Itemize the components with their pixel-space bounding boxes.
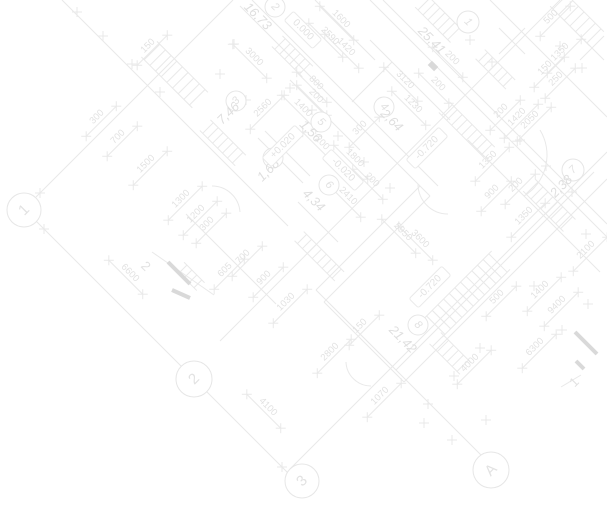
- stair-step: [437, 340, 448, 351]
- room-area-label: 25,41: [414, 22, 448, 56]
- stair-step: [452, 115, 463, 126]
- stair-stringer: [476, 59, 506, 89]
- stair-step: [461, 124, 472, 135]
- window-symbols: [428, 61, 439, 72]
- section-number-label: 1: [566, 374, 582, 390]
- section-number-label: 2: [138, 258, 154, 274]
- plan-line: [324, 196, 430, 302]
- stair-step: [536, 192, 548, 204]
- stair-step: [498, 72, 507, 81]
- section-thick-mark: [576, 361, 584, 369]
- plan-line: [324, 302, 404, 382]
- stair-step: [471, 134, 482, 145]
- stair-stringer: [210, 120, 245, 155]
- stair-step: [307, 244, 316, 253]
- stair-step: [442, 345, 453, 356]
- stair-stringer: [430, 344, 460, 374]
- stair-step: [466, 276, 484, 294]
- stair-step: [438, 305, 456, 323]
- dimension-label: 200: [443, 49, 462, 68]
- stair-stringer: [304, 232, 344, 272]
- stair-step: [438, 18, 450, 30]
- door-swing-arc: [212, 186, 240, 212]
- dimension-label: 200: [429, 75, 448, 94]
- plan-line: [370, 0, 607, 237]
- stair-step: [478, 52, 487, 61]
- blueprint-page: 123A213457678150300700150013001200300025…: [0, 0, 607, 506]
- dimension-label: 700: [109, 128, 128, 147]
- stair-step: [576, 18, 590, 32]
- stair-step: [472, 271, 490, 289]
- stair-step: [232, 152, 243, 163]
- door-swing-arc: [524, 130, 547, 196]
- stair-step: [322, 259, 331, 268]
- stair-step: [476, 139, 487, 150]
- section-thick-mark: [575, 332, 597, 354]
- stair-step: [526, 182, 538, 194]
- stair-stringer: [141, 57, 192, 108]
- stair-step: [427, 316, 445, 334]
- stair-step: [564, 6, 578, 20]
- stair-step: [302, 239, 311, 248]
- stair-step: [208, 128, 219, 139]
- stair-step: [275, 39, 286, 50]
- stair-step: [447, 350, 458, 361]
- section-line: [152, 252, 214, 295]
- dimension-label: 150: [139, 37, 158, 56]
- stair-step: [503, 77, 512, 86]
- stair-step: [423, 3, 435, 15]
- stair-step: [447, 110, 458, 121]
- stair-stringer: [200, 130, 235, 165]
- stair-step: [280, 44, 291, 55]
- dimension-label: 200: [507, 176, 526, 195]
- stair-step: [493, 67, 502, 76]
- dimension-label: 500: [542, 8, 561, 27]
- door-swing-arc: [346, 362, 371, 386]
- stair-step: [418, 0, 430, 10]
- dimension-label: 300: [351, 119, 370, 138]
- stair-step: [317, 254, 326, 263]
- stair-step: [457, 120, 468, 131]
- stair-step: [466, 129, 477, 140]
- dimension-label: 500: [488, 288, 507, 307]
- stair-step: [428, 8, 440, 20]
- stair-step: [461, 282, 479, 300]
- stair-step: [489, 254, 507, 272]
- stair-step: [477, 265, 495, 283]
- stair-step: [297, 234, 306, 243]
- wall-and-axis-lines: [36, 0, 607, 475]
- stair-step: [285, 49, 296, 60]
- section-thick-mark: [172, 290, 190, 298]
- stair-step: [312, 249, 321, 258]
- stair-step: [570, 12, 584, 26]
- stair-step: [218, 138, 229, 149]
- stair-step: [551, 207, 563, 219]
- stair-step: [213, 133, 224, 144]
- stair-stringer: [485, 50, 515, 80]
- stair-step: [327, 264, 336, 273]
- stair-step: [433, 13, 445, 25]
- stair-step: [332, 269, 341, 278]
- stair-stringer: [295, 241, 335, 281]
- stair-step: [483, 259, 501, 277]
- stair-step: [203, 123, 214, 134]
- stair-step: [444, 299, 462, 317]
- stair-step: [222, 142, 233, 153]
- stair-step: [432, 335, 443, 346]
- stair-step: [449, 293, 467, 311]
- stair-step: [556, 212, 568, 224]
- stair-step: [432, 310, 450, 328]
- window-symbol: [428, 61, 439, 72]
- dimension-label: 150: [351, 317, 370, 336]
- stair-step: [294, 58, 305, 69]
- dimension-label: 200: [363, 171, 382, 190]
- stair-step: [290, 54, 301, 65]
- stair-step: [443, 23, 455, 35]
- dimension-label: 300: [88, 108, 107, 127]
- grid-and-room-bubbles: 123A213457678: [7, 0, 584, 498]
- dimension-label: 900: [483, 183, 502, 202]
- stair-step: [488, 62, 497, 71]
- stair-step: [227, 147, 238, 158]
- floor-plan-drawing: 123A213457678150300700150013001200300025…: [0, 0, 607, 506]
- stair-step: [455, 288, 473, 306]
- stair-step: [561, 217, 573, 229]
- stair-step: [581, 23, 595, 37]
- stair-step: [448, 28, 460, 40]
